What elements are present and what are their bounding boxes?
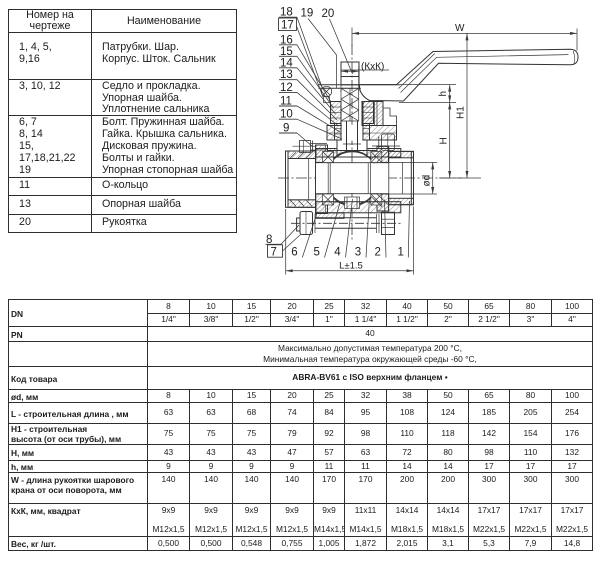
svg-text:h: h — [438, 91, 449, 97]
svg-text:H1: H1 — [456, 106, 467, 119]
svg-text:3: 3 — [355, 246, 361, 258]
svg-text:H: H — [439, 137, 450, 144]
svg-text:19: 19 — [301, 8, 314, 20]
svg-text:18: 18 — [280, 7, 293, 19]
svg-text:L±1.5: L±1.5 — [339, 261, 363, 272]
svg-text:1: 1 — [398, 246, 404, 258]
svg-text:5: 5 — [314, 246, 320, 258]
svg-text:6: 6 — [291, 246, 297, 258]
svg-text:2: 2 — [375, 246, 381, 258]
svg-text:20: 20 — [322, 8, 335, 20]
svg-text:W: W — [455, 23, 465, 34]
svg-text:ød: ød — [422, 175, 433, 187]
svg-text:7: 7 — [271, 246, 277, 258]
svg-text:4: 4 — [334, 246, 341, 258]
svg-text:17: 17 — [281, 20, 294, 32]
svg-text:(КхК): (КхК) — [361, 61, 384, 72]
